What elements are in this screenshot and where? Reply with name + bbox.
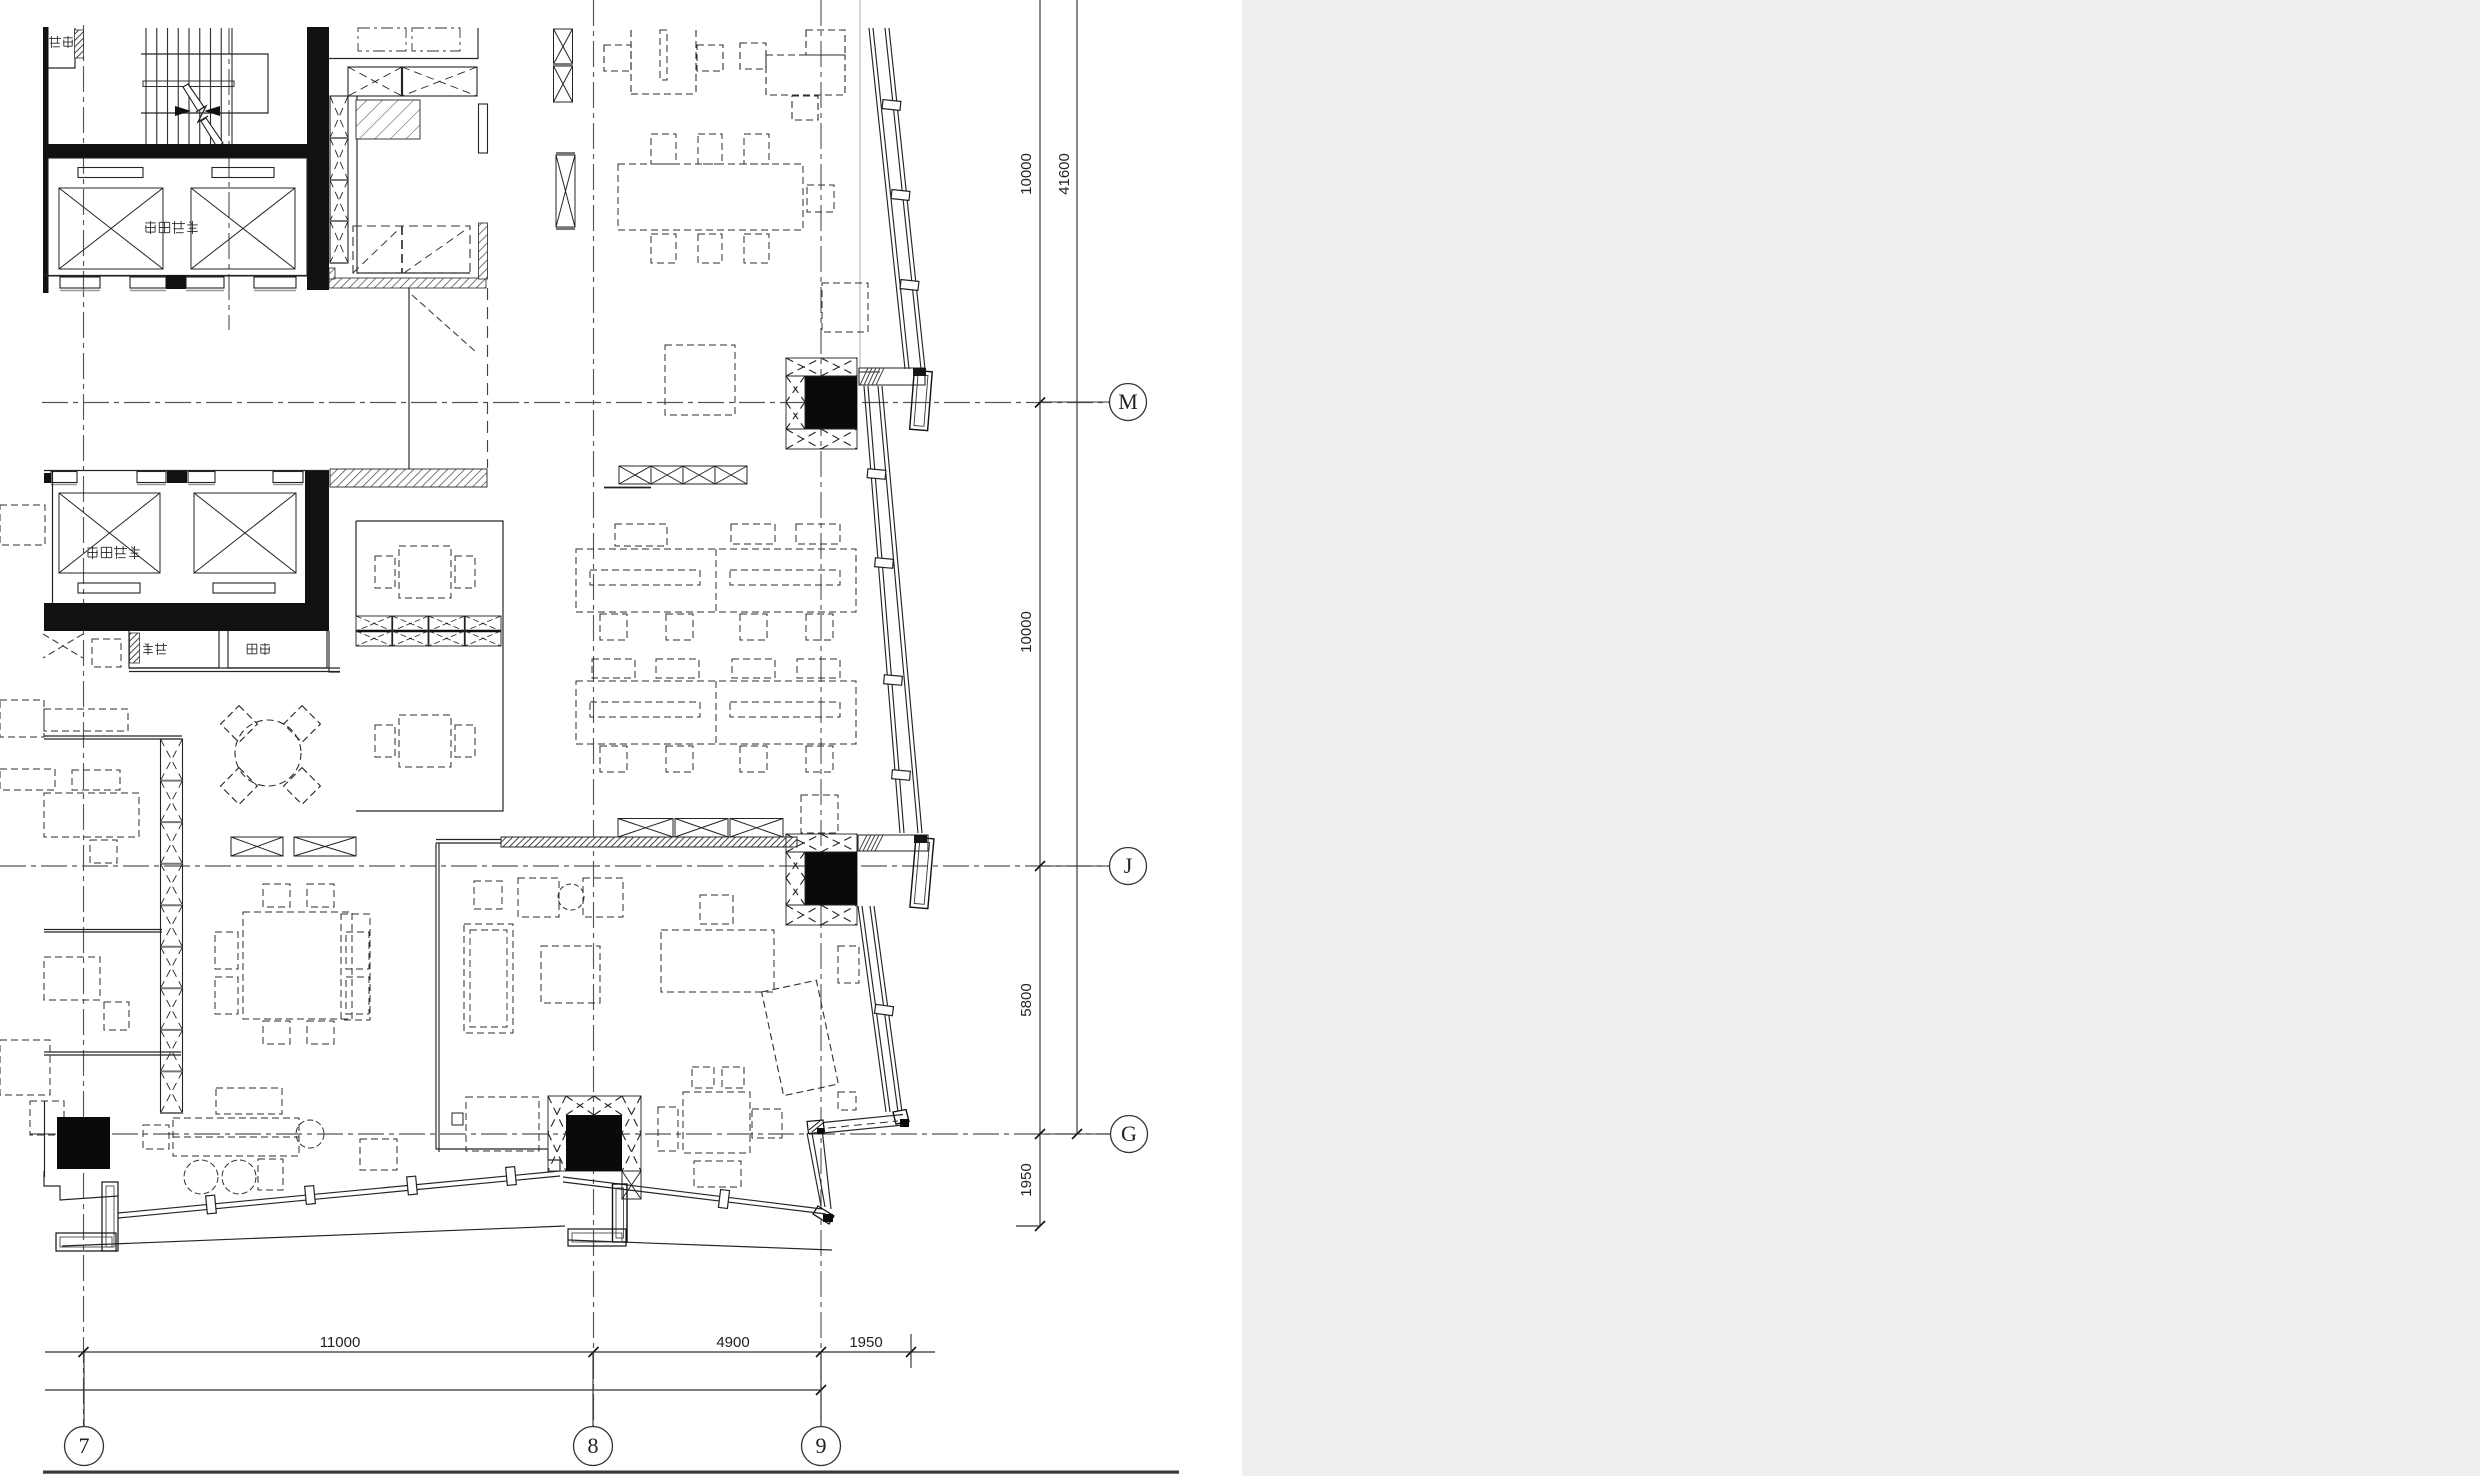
svg-text:9: 9	[816, 1433, 827, 1458]
svg-text:G: G	[1121, 1121, 1137, 1146]
svg-text:1950: 1950	[849, 1334, 882, 1351]
svg-text:8: 8	[588, 1433, 599, 1458]
svg-text:7: 7	[79, 1433, 90, 1458]
svg-text:11000: 11000	[320, 1334, 361, 1351]
svg-text:4900: 4900	[716, 1334, 749, 1351]
svg-text:10000: 10000	[1018, 611, 1035, 653]
svg-text:1950: 1950	[1018, 1163, 1035, 1196]
svg-text:41600: 41600	[1056, 153, 1073, 195]
svg-text:10000: 10000	[1018, 153, 1035, 195]
svg-text:5800: 5800	[1018, 983, 1035, 1016]
svg-text:J: J	[1124, 853, 1133, 878]
svg-text:M: M	[1118, 389, 1138, 414]
